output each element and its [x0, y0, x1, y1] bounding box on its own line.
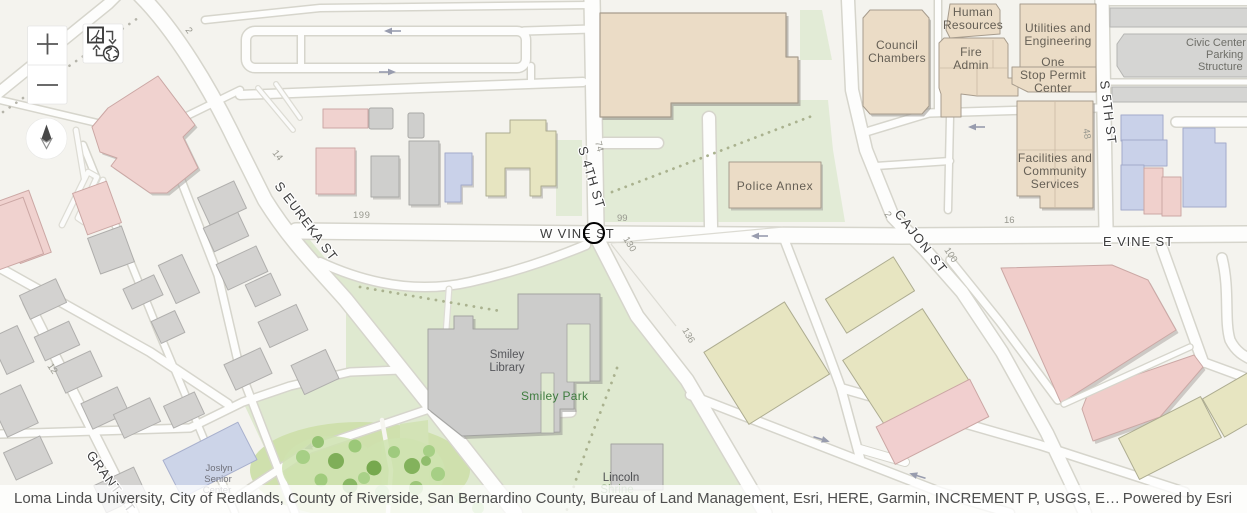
svg-text:Engineering: Engineering [1024, 34, 1091, 48]
svg-text:48: 48 [1080, 128, 1093, 140]
svg-text:Loma Linda University, City of: Loma Linda University, City of Redlands,… [14, 490, 1120, 507]
svg-text:Senior: Senior [204, 474, 231, 485]
svg-text:99: 99 [617, 213, 628, 224]
svg-text:Facilities and: Facilities and [1018, 151, 1092, 165]
svg-text:Civic Center: Civic Center [1186, 37, 1246, 49]
svg-text:Services: Services [1031, 177, 1079, 191]
svg-text:Community: Community [1023, 164, 1086, 178]
svg-text:One: One [1041, 55, 1065, 69]
svg-text:Library: Library [489, 362, 524, 374]
svg-text:199: 199 [353, 210, 370, 221]
svg-text:Chambers: Chambers [868, 51, 926, 65]
svg-text:Fire: Fire [960, 45, 982, 59]
svg-text:Human: Human [953, 5, 993, 19]
svg-text:Smiley: Smiley [490, 349, 525, 361]
svg-text:Smiley Park: Smiley Park [521, 389, 589, 403]
svg-text:E VINE ST: E VINE ST [1103, 234, 1174, 249]
svg-text:Parking: Parking [1206, 49, 1243, 61]
svg-text:Center: Center [1034, 81, 1072, 95]
svg-text:Police Annex: Police Annex [737, 179, 814, 193]
svg-text:Lincoln: Lincoln [603, 472, 639, 484]
svg-text:Admin: Admin [953, 58, 989, 72]
svg-text:16: 16 [1004, 215, 1015, 226]
svg-text:Structure: Structure [1198, 61, 1243, 73]
svg-text:Stop Permit: Stop Permit [1020, 68, 1086, 82]
svg-text:Powered by Esri: Powered by Esri [1123, 490, 1232, 507]
svg-text:Utilities and: Utilities and [1025, 21, 1091, 35]
svg-text:Resources: Resources [943, 18, 1003, 32]
svg-text:Joslyn: Joslyn [206, 463, 233, 474]
svg-text:Council: Council [876, 38, 918, 52]
